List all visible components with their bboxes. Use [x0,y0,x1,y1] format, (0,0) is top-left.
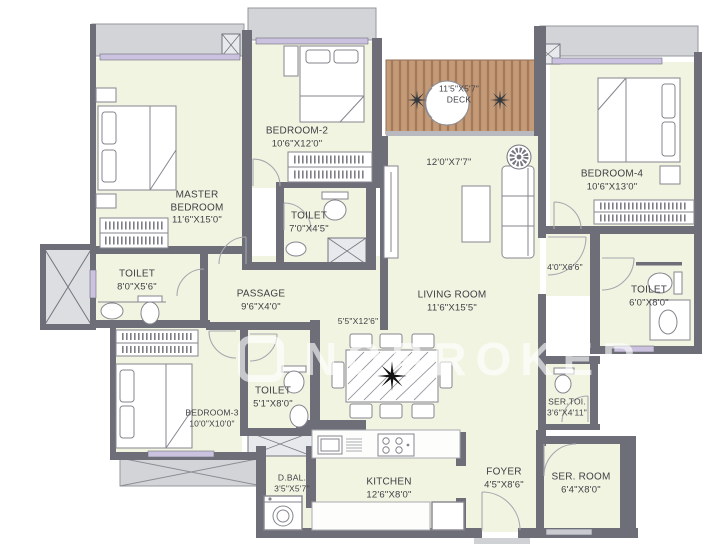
entrance-step [474,538,530,544]
room-name: D.BAL. [274,473,310,484]
room-name: BEDROOM-3 [185,408,238,419]
dining-set [332,334,452,418]
room-label-ser-room: SER. ROOM 6'4"X8'0" [551,472,610,497]
room-name: KITCHEN [366,477,411,490]
chajja-bedroom2 [248,8,376,40]
room-dims: 7'0"X4'5" [289,223,329,236]
deck-plant-icon [490,90,510,110]
floor-plan-drawing [0,0,711,545]
room-dims: 3'5"X5'7" [274,483,310,494]
room-dims: 11'5"X5'7" [439,84,479,95]
room-dims: 11'6"X15'0" [154,214,240,227]
bedroom3-wardrobe [116,330,198,356]
room-name: TOILET [629,285,669,298]
room-dims: 10'0"X10'0" [185,418,238,429]
room-label-toilet-bedroom4: TOILET 6'0"X8'0" [629,285,669,310]
room-name: SER. ROOM [551,472,610,485]
room-label-ser-toi: SER.TOI. 3'6"X4'11" [547,397,587,418]
room-name: MASTER BEDROOM [154,189,240,214]
room-dims: 6'0"X8'0" [629,297,669,310]
chajja-bedroom4 [540,26,698,56]
room-label-d-bal: D.BAL. 3'5"X5'7" [274,473,310,494]
washing-machine-icon [264,496,302,530]
room-label-bedroom-3: BEDROOM-3 10'0"X10'0" [185,408,238,429]
room-label-kitchen: KITCHEN 12'6"X8'0" [366,477,411,502]
kitchen-counter-bottom [312,502,464,530]
room-dims: 6'4"X8'0" [551,484,610,497]
room-dims: 10'6"X13'0" [581,181,643,194]
bedroom2-wardrobe [288,152,372,182]
room-name: FOYER [484,467,524,480]
kitchen-counter-top [312,430,460,458]
room-label-toilet-bedroom2: TOILET 7'0"X4'5" [289,211,329,236]
tv-unit [384,166,398,258]
room-label-toilet-bedroom3: TOILET 5'1"X8'0" [253,386,293,411]
room-dims: 9'6"X4'0" [237,301,285,314]
room-dims: 12'0"X7'7" [426,157,471,170]
room-dims: 3'6"X4'11" [547,407,587,418]
coffee-table [462,186,490,242]
room-dims: 4'5"X8'6" [484,479,524,492]
room-label-dining: 5'5"X12'6" [338,316,379,327]
room-name: SER.TOI. [547,397,587,408]
table-centerpiece-icon [377,361,407,391]
sofa [502,166,534,258]
room-dims: 5'1"X8'0" [253,398,293,411]
room-label-living-room: LIVING ROOM 11'6"X15'5" [418,290,487,315]
ceiling-fan-icon [507,145,531,169]
room-label-living-upper: 12'0"X7'7" [426,157,471,170]
room-label-passage-right: 4'0"X6'6" [547,262,583,273]
room-label-bedroom-2: BEDROOM-2 10'6"X12'0" [266,126,328,151]
bedroom3-bed [116,364,192,448]
room-name: BEDROOM-2 [266,126,328,139]
room-dims: 12'6"X8'0" [366,489,411,502]
room-dims: 5'5"X12'6" [338,316,379,327]
room-name: TOILET [289,211,329,224]
room-dims: 4'0"X6'6" [547,262,583,273]
deck-plant-icon [407,90,427,110]
room-label-master-bedroom: MASTER BEDROOM 11'6"X15'0" [154,189,240,227]
room-label-foyer: FOYER 4'5"X8'6" [484,467,524,492]
room-dims: 11'6"X15'5" [418,302,487,315]
floor-plan: MASTER BEDROOM 11'6"X15'0" BEDROOM-2 10'… [0,0,711,545]
room-name: TOILET [253,386,293,399]
room-name: PASSAGE [237,289,285,302]
room-name: TOILET [117,269,157,282]
fridge [432,502,464,530]
room-label-bedroom-4: BEDROOM-4 10'6"X13'0" [581,169,643,194]
room-label-deck: 11'5"X5'7" DECK [439,84,479,105]
room-name: DECK [439,94,479,105]
room-label-toilet-master: TOILET 8'0"X5'6" [117,269,157,294]
room-label-passage: PASSAGE 9'6"X4'0" [237,289,285,314]
room-dims: 8'0"X5'6" [117,281,157,294]
deck-sill [386,131,536,136]
room-dims: 10'6"X12'0" [266,138,328,151]
hob-icon [378,434,414,456]
chajja-master [92,24,244,56]
bedroom4-wardrobe [594,200,694,224]
room-name: BEDROOM-4 [581,169,643,182]
room-name: LIVING ROOM [418,290,487,303]
lift-shaft [40,244,96,330]
